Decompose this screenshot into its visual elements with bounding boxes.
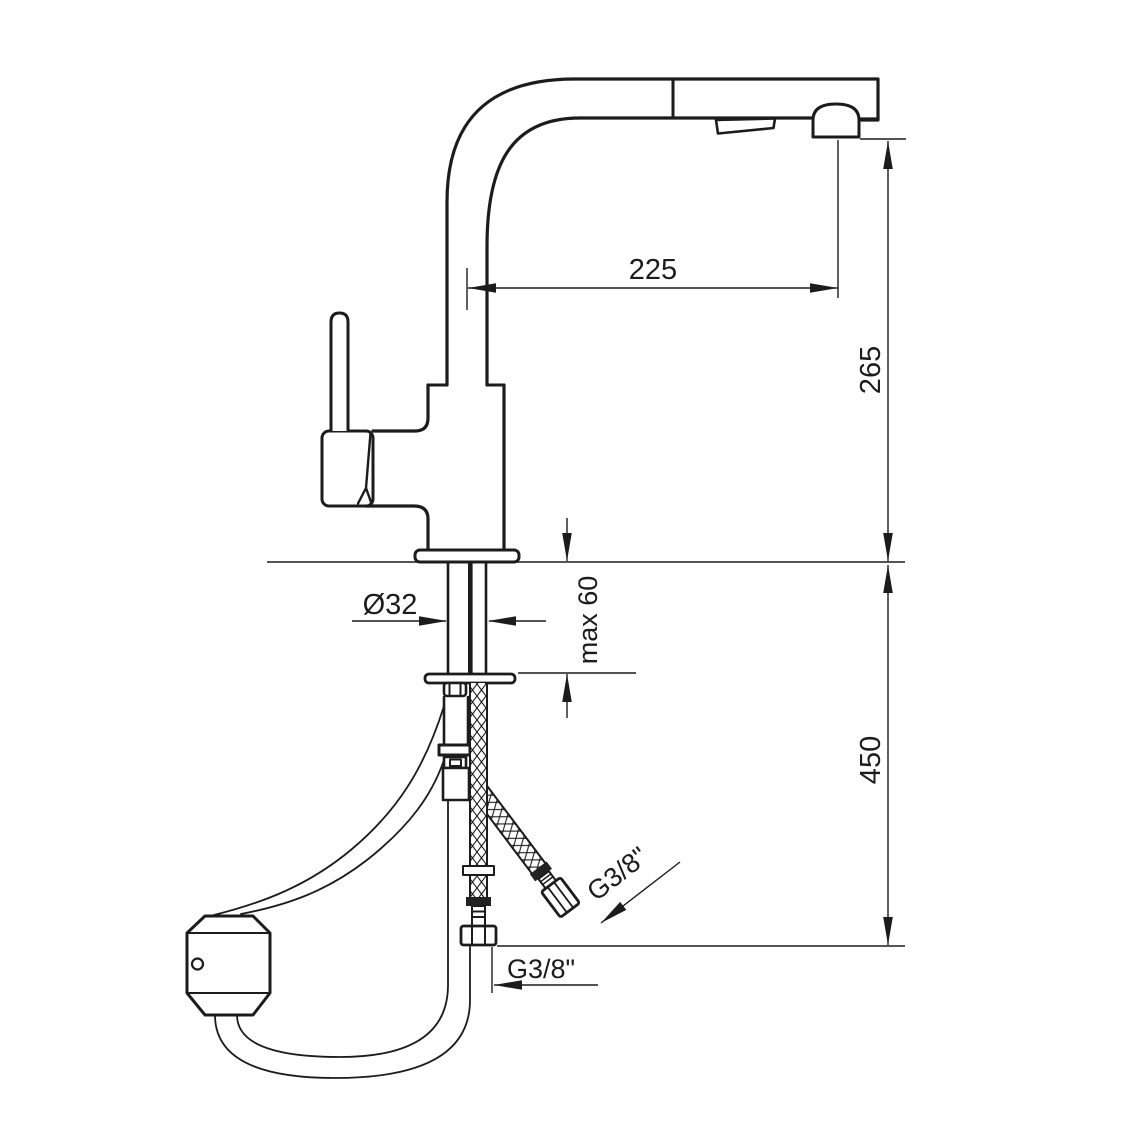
- hose-weight-screw: [192, 959, 203, 970]
- hose-loop-inner: [237, 800, 448, 1057]
- spray-button: [716, 119, 775, 134]
- connector-collar-inner: [450, 760, 461, 767]
- dim-450-label: 450: [855, 736, 887, 784]
- arrow-g38-diag: [601, 902, 626, 923]
- dim-g38-bottom-label: G3/8": [507, 954, 575, 984]
- installation-parts: [187, 562, 580, 1078]
- arrow-225-right: [810, 283, 838, 293]
- hose-core-in-shank: [468, 563, 473, 674]
- pullout-hose-upper-edge: [214, 706, 444, 915]
- dim-max60-label: max 60: [573, 576, 603, 665]
- vertical-crimp: [466, 897, 491, 906]
- dim-225-label: 225: [629, 254, 677, 286]
- arrow-225-left: [468, 283, 496, 293]
- dim-d32-label: Ø32: [363, 589, 418, 621]
- vertical-hex-nut: [461, 926, 496, 945]
- body-left-upper-step: [373, 385, 428, 431]
- shank-tube: [444, 697, 468, 745]
- arrow-d32-left: [419, 616, 447, 626]
- arrow-265-top: [883, 141, 893, 169]
- arrow-450-top: [883, 565, 893, 593]
- pullout-hose-lower-edge: [241, 757, 445, 914]
- body-left-lower-step: [365, 506, 428, 551]
- threaded-shank: [448, 562, 486, 674]
- hose-connector: [439, 745, 470, 755]
- arrow-max60-top: [562, 533, 572, 561]
- arrow-450-bottom: [883, 917, 893, 945]
- arrow-265-bottom: [883, 533, 893, 561]
- base-flange: [415, 550, 519, 562]
- faucet-body: [322, 79, 878, 562]
- aerator-outlet: [813, 104, 859, 137]
- dim-g38-diag-label: G3/8": [581, 841, 653, 907]
- mounting-nut: [444, 683, 466, 696]
- spout-inner-contour: [487, 118, 812, 385]
- lever-handle: [331, 313, 348, 431]
- arrow-d32-right: [488, 616, 516, 626]
- faucet-dimension-diagram: 225 265 450 max 60 Ø32 G3/8" G3/8": [0, 0, 1146, 1146]
- mounting-washer: [425, 674, 515, 683]
- arrow-max60-bottom: [562, 674, 572, 702]
- handle-base: [322, 431, 373, 506]
- vertical-ferrule: [463, 866, 494, 875]
- dim-265-label: 265: [855, 346, 887, 394]
- technical-drawing-canvas: 225 265 450 max 60 Ø32 G3/8" G3/8": [0, 0, 1146, 1146]
- hose-nipple: [443, 768, 469, 800]
